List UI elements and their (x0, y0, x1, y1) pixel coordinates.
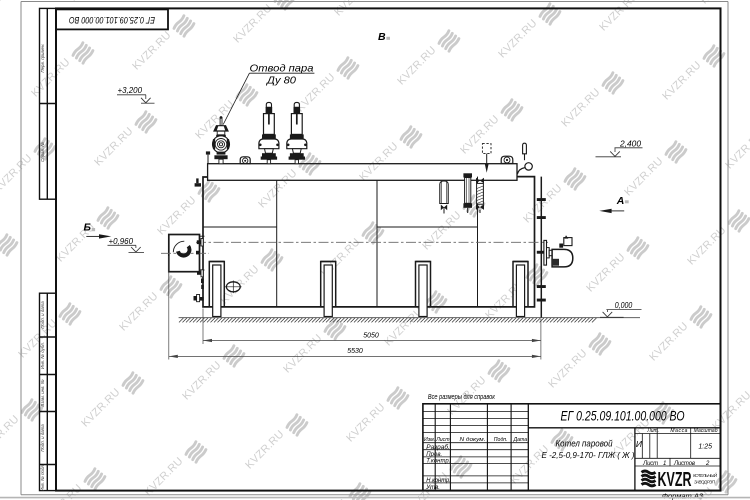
svg-text:Инв. № подл.: Инв. № подл. (40, 464, 45, 491)
svg-text:ЕГ 0.25.09.101.00.000 ВО: ЕГ 0.25.09.101.00.000 ВО (69, 14, 155, 25)
svg-text:Лит.: Лит. (646, 428, 659, 434)
svg-text:Котел паровой: Котел паровой (556, 438, 614, 449)
svg-text:Лист: Лист (435, 437, 450, 443)
svg-text:ЗАВОД РЭП: ЗАВОД РЭП (694, 480, 716, 485)
svg-text:Справ. №: Справ. № (40, 142, 45, 162)
svg-text:2: 2 (705, 461, 710, 467)
svg-text:+0,960: +0,960 (109, 237, 134, 246)
svg-text:Дата: Дата (513, 437, 528, 443)
svg-text:Разраб.: Разраб. (426, 445, 450, 451)
svg-text:Б: Б (84, 221, 92, 233)
svg-text:Взам. инв. №: Взам. инв. № (40, 379, 45, 406)
svg-text:Перв. примен.: Перв. примен. (40, 43, 45, 72)
svg-text:Е -2,5-0,9-170- ГЛЖ ( Ж ): Е -2,5-0,9-170- ГЛЖ ( Ж ) (542, 450, 635, 460)
svg-text:КОТЕЛЬНЫЙ: КОТЕЛЬНЫЙ (693, 471, 718, 478)
svg-text:А: А (616, 195, 625, 207)
svg-text:Т.контр.: Т.контр. (426, 459, 450, 465)
svg-text:Формат А3: Формат А3 (662, 492, 704, 500)
svg-text:Масштаб: Масштаб (694, 428, 718, 434)
svg-text:5050: 5050 (363, 332, 379, 339)
svg-text:Подп. и дата: Подп. и дата (40, 424, 45, 452)
svg-text:KVZR: KVZR (658, 468, 692, 491)
svg-text:Лист: Лист (642, 461, 658, 467)
svg-text:Ду 80: Ду 80 (266, 75, 296, 87)
svg-text:Масса: Масса (670, 428, 687, 434)
svg-text:Листов: Листов (673, 461, 695, 467)
svg-text:1:25: 1:25 (698, 443, 712, 450)
svg-text:Инв. № дубл.: Инв. № дубл. (40, 342, 45, 369)
svg-text:N докум.: N докум. (460, 437, 486, 443)
svg-text:Пров.: Пров. (426, 452, 442, 458)
svg-text:0,000: 0,000 (615, 301, 633, 310)
svg-text:И: И (636, 439, 643, 449)
svg-text:Изм.: Изм. (424, 437, 435, 443)
svg-text:Все размеры для справок: Все размеры для справок (428, 393, 496, 401)
svg-text:ЕГ 0.25.09.101.00.000 ВО: ЕГ 0.25.09.101.00.000 ВО (561, 408, 685, 423)
svg-text:Подп. и дата: Подп. и дата (40, 301, 45, 329)
svg-text:2,400: 2,400 (619, 139, 641, 148)
svg-text:Н.контр.: Н.контр. (426, 478, 451, 484)
svg-text:Подп.: Подп. (494, 437, 508, 443)
svg-text:В: В (378, 31, 386, 43)
svg-text:1: 1 (663, 461, 666, 467)
svg-text:+3,200: +3,200 (118, 86, 143, 95)
svg-text:Утв.: Утв. (425, 485, 440, 491)
svg-text:5530: 5530 (347, 348, 363, 355)
